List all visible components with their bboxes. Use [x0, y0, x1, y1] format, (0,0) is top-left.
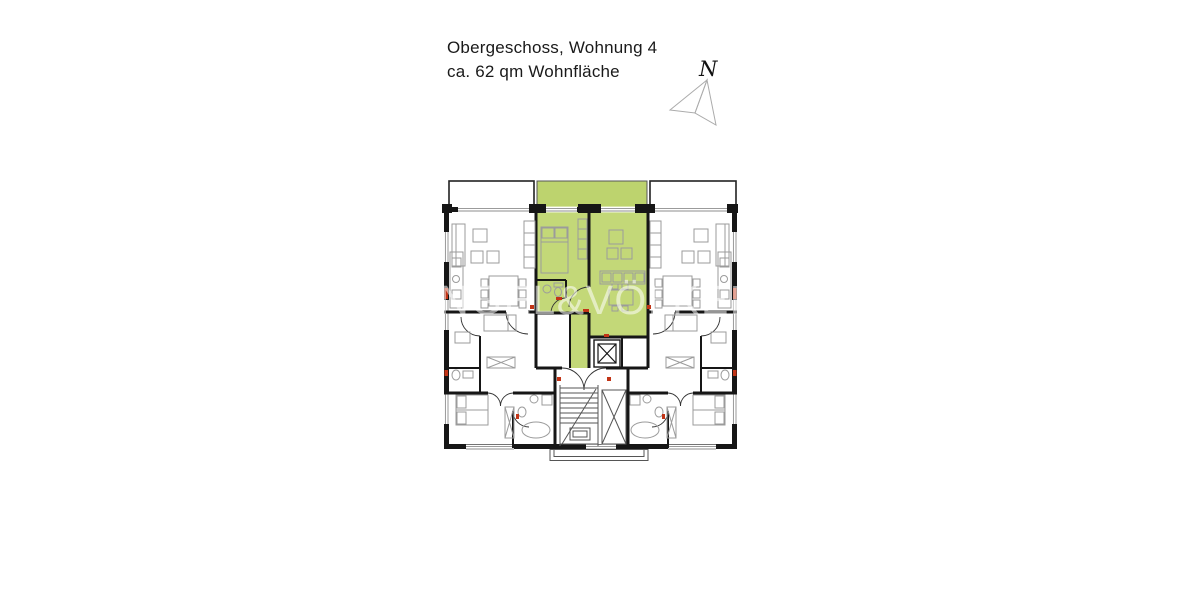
elevator-icon [594, 340, 620, 367]
floor-plan [438, 175, 744, 472]
floor-plan-svg [438, 175, 744, 467]
shaft-cross [602, 390, 626, 444]
plan-title-line2: ca. 62 qm Wohnfläche [447, 60, 657, 84]
balcony-right [650, 181, 736, 208]
page: Obergeschoss, Wohnung 4 ca. 62 qm Wohnfl… [0, 0, 1200, 600]
balcony-left [449, 181, 534, 208]
plan-title-line1: Obergeschoss, Wohnung 4 [447, 36, 657, 60]
north-arrow-icon: N [658, 42, 748, 142]
stairs [560, 385, 598, 446]
entrance-porch [550, 450, 648, 461]
plan-title: Obergeschoss, Wohnung 4 ca. 62 qm Wohnfl… [447, 36, 657, 84]
north-label: N [698, 57, 718, 81]
